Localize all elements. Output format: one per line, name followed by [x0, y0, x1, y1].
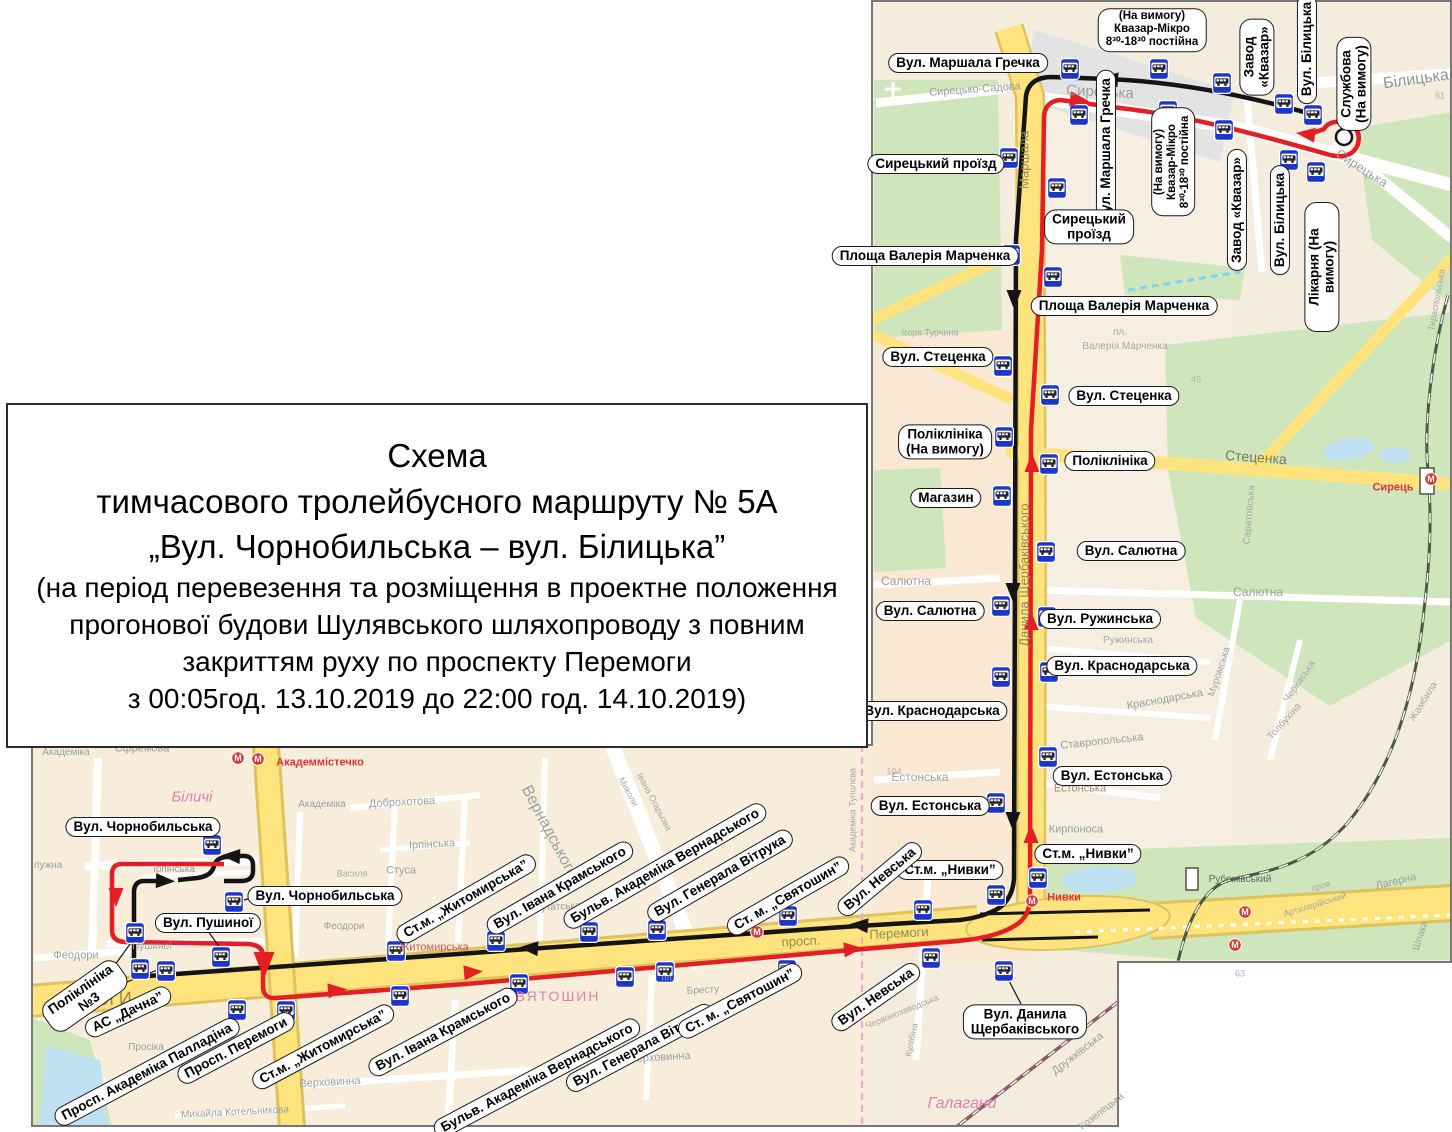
title-box: Схема тимчасового тролейбусного маршруту… [6, 403, 868, 748]
metro-icon [1239, 906, 1252, 919]
bus-stop-icon [648, 920, 667, 941]
bus-stop-icon [1213, 73, 1232, 94]
bus-stop-icon [391, 986, 410, 1007]
bus-stop-icon [1304, 105, 1323, 126]
bus-stop-icon [992, 667, 1011, 688]
bus-stop-icon [995, 427, 1014, 448]
bus-stop-icon [1037, 542, 1056, 563]
bus-stop-icon [1280, 150, 1299, 171]
bus-stop-icon [228, 1000, 247, 1021]
metro-icon [1026, 895, 1039, 908]
title-line: Схема [387, 433, 486, 479]
bus-stop-icon [510, 974, 529, 995]
bus-stop-icon [1048, 178, 1067, 199]
bus-stop-icon [1307, 162, 1326, 183]
bus-stop-icon [992, 596, 1011, 617]
bus-stop-icon [1061, 59, 1080, 80]
bus-stop-icon [1215, 120, 1234, 141]
route-scheme-page: М [0, 0, 1452, 1132]
bus-stop-icon [1044, 267, 1063, 288]
bus-stop-icon [212, 947, 231, 968]
bus-stop-icon [1040, 662, 1059, 683]
bus-stop-icon [993, 486, 1012, 507]
bus-stop-icon [1040, 454, 1059, 475]
bus-stop-icon [987, 793, 1006, 814]
urban-block [872, 330, 1032, 962]
title-line: закриттям руху по проспекту Перемоги [182, 644, 691, 681]
bus-stop-icon [987, 885, 1006, 906]
metro-icon [751, 926, 764, 939]
bus-stop-icon [656, 962, 675, 983]
bus-stop-icon [487, 931, 506, 952]
metro-icon [232, 752, 245, 765]
bus-stop-icon [914, 900, 933, 921]
terminal-loop-circle [1336, 129, 1352, 145]
bus-stop-icon [1041, 385, 1060, 406]
metro-icon [1425, 473, 1438, 486]
bus-stop-icon [1159, 101, 1178, 122]
bus-stop-icon [131, 959, 150, 980]
bus-stop-icon [1000, 148, 1019, 169]
bus-stop-icon [616, 967, 635, 988]
title-line: з 00:05год. 13.10.2019 до 22:00 год. 14.… [128, 681, 747, 718]
bus-stop-icon [126, 923, 145, 944]
bus-stop-icon [277, 1001, 296, 1022]
bus-stop-icon [157, 961, 176, 982]
bus-stop-icon [778, 960, 797, 981]
bus-stop-icon [580, 922, 599, 943]
bus-stop-icon [1038, 607, 1057, 628]
bus-stop-icon [1150, 59, 1169, 80]
metro-icon [252, 753, 265, 766]
bus-stop-icon [225, 892, 244, 913]
bus-stop-icon [1002, 245, 1021, 266]
metro-icon [1229, 939, 1242, 952]
title-line: (на період перевезення та розміщення в п… [36, 570, 837, 607]
bus-stop-icon [1039, 747, 1058, 768]
title-line: прогонової будови Шулявського шляхопрово… [69, 607, 804, 644]
bus-stop-icon [387, 941, 406, 962]
bus-stop-icon [779, 906, 798, 927]
bus-stop-icon [922, 948, 941, 969]
title-line: „Вул. Чорнобильська – вул. Білицька” [149, 524, 725, 570]
bus-stop-icon [203, 835, 222, 856]
bus-stop-icon [1070, 105, 1089, 126]
title-line: тимчасового тролейбусного маршруту № 5А [96, 479, 777, 525]
bus-stop-icon [1275, 94, 1294, 115]
bus-stop-icon [1029, 868, 1048, 889]
bus-stop-icon [995, 961, 1014, 982]
bus-stop-icon [994, 356, 1013, 377]
